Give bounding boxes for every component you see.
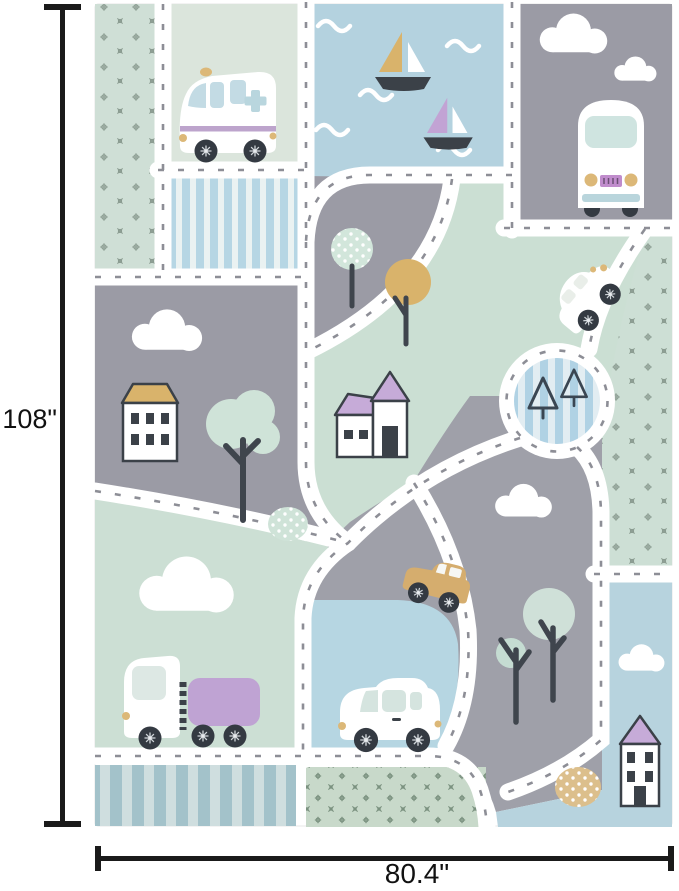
- dotted-bush: [268, 507, 308, 541]
- roundabout: [514, 358, 600, 444]
- rug-illustration: [0, 0, 679, 891]
- patch-dotted-left: [95, 4, 158, 278]
- camper-bus: [578, 100, 644, 217]
- patch-water: [306, 4, 512, 180]
- height-dimension-label: 108": [0, 404, 57, 435]
- patch-striped-blue: [158, 169, 306, 277]
- height-dimension-line: [60, 5, 65, 824]
- gold-dotted-bush: [555, 767, 601, 807]
- patch-striped-bottom: [95, 765, 296, 826]
- width-dimension-cap-right: [668, 846, 674, 871]
- patch-dotted-bottom: [306, 767, 486, 827]
- height-dimension-cap-top: [44, 4, 81, 10]
- product-dimension-image: 108" 80.4": [0, 0, 679, 891]
- width-dimension-label: 80.4": [350, 858, 484, 890]
- height-dimension-cap-bottom: [44, 821, 81, 827]
- house-with-gold-roof: [122, 384, 178, 461]
- width-dimension-cap-left: [95, 846, 101, 871]
